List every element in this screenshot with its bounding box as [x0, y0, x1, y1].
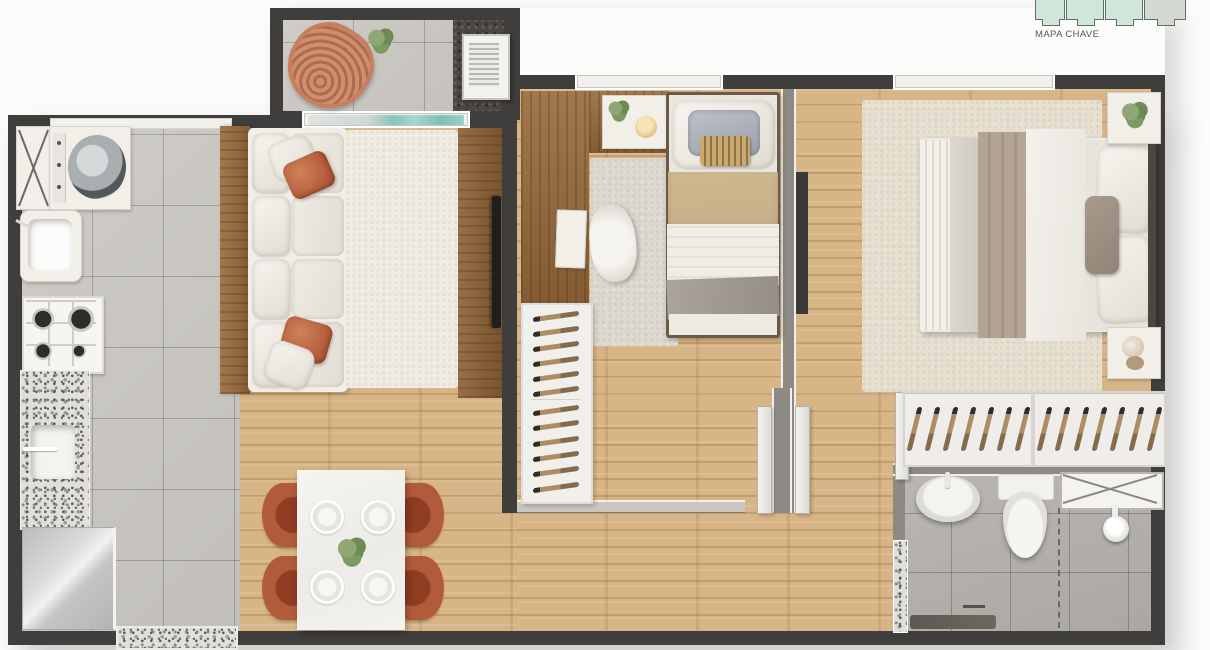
toilet-bowl	[1003, 492, 1047, 558]
wall-living-top-stub-left	[283, 111, 302, 128]
laundry-tub	[20, 210, 82, 282]
window-glass	[308, 114, 464, 125]
hanger-icon	[942, 407, 958, 451]
x-brace-icon	[17, 127, 50, 209]
bed-pillow-striped	[700, 136, 750, 166]
hanger-icon	[1147, 407, 1163, 451]
hanger-icon	[1073, 407, 1089, 451]
nightstand-decor	[1126, 356, 1144, 370]
wall-living-bedroom2	[502, 89, 517, 513]
burner	[32, 308, 54, 330]
keymap-unit	[1144, 0, 1186, 20]
bedroom2-wardrobe	[521, 303, 593, 504]
place-setting	[310, 500, 344, 534]
table-centerpiece-plant	[336, 534, 368, 570]
master-bedroom-door	[795, 406, 810, 514]
hanger-icon	[996, 407, 1012, 451]
x-brace-icon	[1060, 472, 1160, 506]
washer-controls	[53, 133, 66, 203]
bed-blanket-beige	[668, 172, 778, 228]
kitchen-counter	[20, 370, 90, 530]
bed-band-gray	[950, 138, 978, 332]
towel-bar	[963, 605, 985, 608]
nightstand-lamp	[635, 116, 657, 138]
bedroom2-window	[575, 73, 723, 90]
master-wardrobe	[903, 391, 1162, 463]
wall-door-stub	[772, 388, 792, 513]
hanger-icon	[533, 341, 579, 352]
tub-basin	[28, 219, 72, 271]
stove	[22, 296, 104, 374]
dining-table	[297, 470, 405, 630]
hanger-icon	[533, 311, 579, 322]
dining-chair	[402, 483, 444, 547]
nightstand-decor	[1122, 336, 1144, 358]
hanger-icon	[533, 326, 579, 337]
master-dark-panel	[796, 172, 808, 314]
sofa-back-cushion	[252, 196, 290, 256]
sofa-console	[220, 126, 250, 394]
bedroom2-nightstand	[602, 95, 668, 149]
wardrobe-hangers-section	[531, 403, 581, 495]
master-nightstand-bottom	[1107, 327, 1161, 379]
wall-bathroom-left-upper	[893, 476, 905, 540]
hanger-icon	[533, 420, 579, 431]
wardrobe-hangers-section	[903, 391, 1033, 467]
shower-head	[1103, 516, 1129, 542]
refrigerator	[22, 527, 116, 630]
place-setting	[361, 570, 395, 604]
bed-fold-white	[920, 140, 950, 330]
hanger-icon	[533, 436, 579, 447]
bedroom2-door	[757, 406, 772, 514]
shower-partition-line	[1058, 508, 1060, 628]
bath-mat	[910, 615, 996, 629]
ac-condenser-unit	[462, 34, 510, 100]
keymap-unit	[1066, 0, 1104, 20]
master-accent-pillow	[1085, 196, 1119, 274]
wall-balcony-left	[270, 8, 283, 128]
living-balcony-window	[302, 111, 470, 128]
toilet	[996, 474, 1054, 560]
tv	[492, 196, 501, 328]
hanger-icon	[1091, 407, 1107, 451]
laundry-cabinet-x	[16, 126, 51, 210]
keymap: MAPA CHAVE	[1033, 0, 1193, 46]
washer-drum	[68, 135, 126, 199]
living-rug	[346, 130, 458, 388]
desk-tray	[555, 209, 587, 268]
sink-faucet	[945, 472, 950, 488]
bed-band-taupe	[978, 132, 1026, 338]
bathroom-sink	[916, 476, 980, 522]
hanger-icon	[533, 466, 579, 477]
bed-duvet-white	[1026, 129, 1086, 341]
hanger-icon	[1014, 407, 1030, 451]
burner	[72, 344, 86, 358]
keymap-label: MAPA CHAVE	[1035, 29, 1099, 40]
sofa-seat-cushion	[292, 196, 344, 256]
sofa-seat-cushion	[292, 259, 344, 319]
nightstand-plant	[607, 98, 631, 124]
ac-grille	[469, 43, 499, 87]
bed-foot-white	[669, 314, 777, 334]
master-bedroom-window	[893, 73, 1055, 90]
hanger-icon	[960, 407, 976, 451]
wall-balcony-top	[270, 8, 520, 20]
washing-machine	[49, 126, 131, 210]
hanger-icon	[1110, 407, 1126, 451]
wardrobe-hangers-section	[1033, 391, 1166, 467]
keymap-unit	[1105, 0, 1143, 20]
hanger-icon	[978, 407, 994, 451]
shower-shelf	[1060, 472, 1164, 510]
floorplan-screenshot: MAPA CHAVE	[0, 0, 1210, 650]
hanger-icon	[924, 407, 940, 451]
sofa-back-cushion	[252, 259, 290, 319]
hanger-icon	[533, 386, 579, 397]
burner	[34, 342, 52, 360]
wardrobe-hangers-section	[531, 309, 581, 400]
hanger-icon	[1128, 407, 1144, 451]
nightstand-plant	[1120, 99, 1150, 131]
hanger-icon	[533, 356, 579, 367]
master-nightstand-top	[1107, 92, 1161, 144]
keymap-unit	[1035, 0, 1065, 20]
kitchen-sink	[31, 425, 75, 479]
hanger-icon	[533, 451, 579, 462]
double-bed	[920, 138, 1156, 332]
hanger-icon	[533, 482, 579, 493]
kitchen-faucet	[23, 447, 57, 451]
hanger-icon	[1055, 407, 1071, 451]
single-bed	[666, 92, 780, 338]
balcony-plant	[366, 26, 396, 56]
entrance-threshold	[116, 626, 238, 650]
dining-chair	[402, 556, 444, 620]
sofa	[248, 128, 348, 392]
hanger-icon	[533, 405, 579, 416]
burner	[68, 306, 94, 332]
hanger-icon	[1036, 407, 1052, 451]
headboard	[1148, 138, 1156, 332]
bedroom2-desk	[521, 91, 589, 305]
place-setting	[310, 570, 344, 604]
hanger-icon	[533, 371, 579, 382]
place-setting	[361, 500, 395, 534]
hanger-icon	[906, 407, 922, 451]
wall-bathroom-left-granite	[893, 540, 908, 633]
